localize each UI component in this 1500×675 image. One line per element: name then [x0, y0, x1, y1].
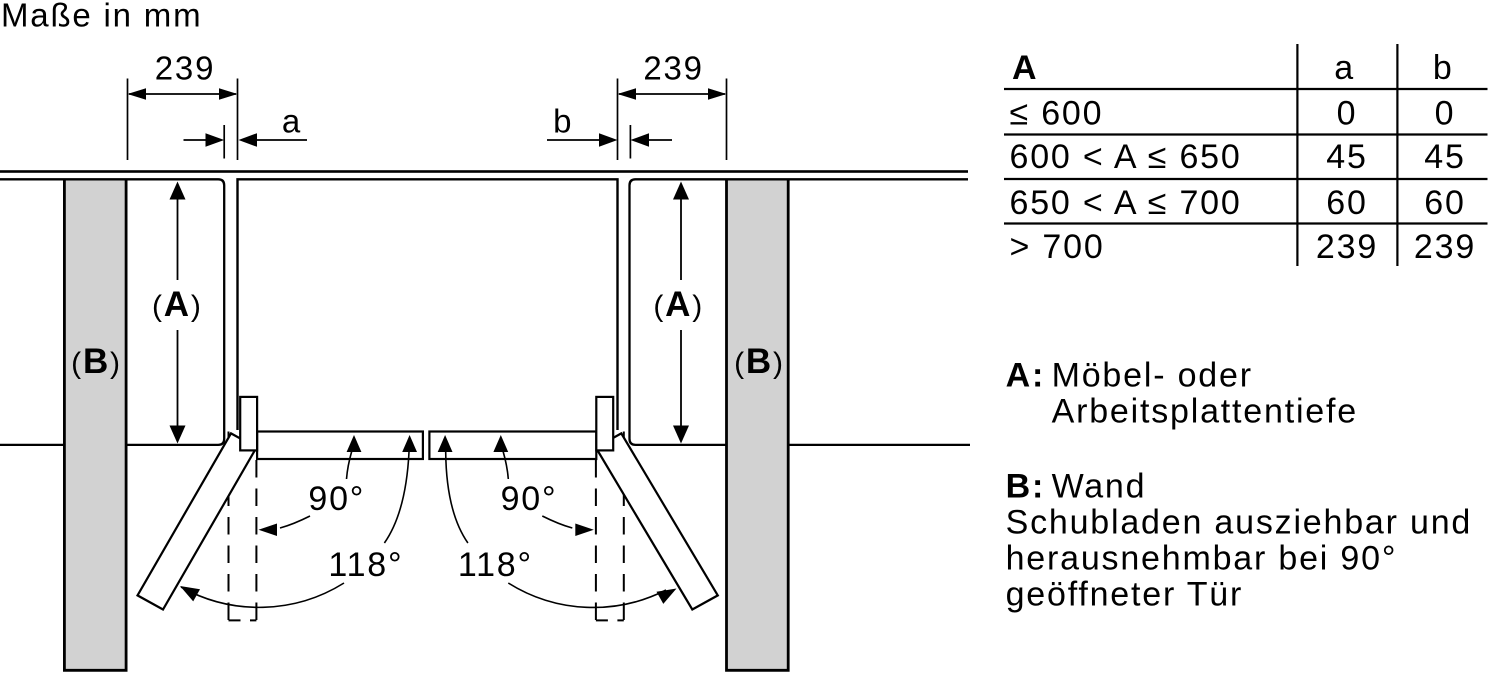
svg-text:geöffneter Tür: geöffneter Tür	[1006, 576, 1244, 614]
svg-text:600 < A ≤ 650: 600 < A ≤ 650	[1010, 138, 1242, 176]
svg-text:118°: 118°	[458, 546, 533, 584]
svg-text:> 700: > 700	[1010, 228, 1105, 266]
svg-text:650 < A ≤ 700: 650 < A ≤ 700	[1010, 184, 1242, 222]
svg-text:B:Wand: B:Wand	[1006, 468, 1147, 506]
svg-text:a: a	[282, 103, 302, 140]
svg-text:(B): (B)	[734, 342, 785, 381]
svg-text:Arbeitsplattentiefe: Arbeitsplattentiefe	[1052, 392, 1358, 430]
svg-text:118°: 118°	[328, 546, 403, 584]
svg-text:239: 239	[155, 50, 215, 87]
svg-text:45: 45	[1424, 138, 1465, 176]
svg-text:b: b	[553, 103, 573, 140]
svg-text:45: 45	[1326, 138, 1367, 176]
svg-text:(A): (A)	[152, 285, 203, 324]
svg-text:239: 239	[1316, 228, 1378, 266]
svg-text:b: b	[1433, 49, 1454, 87]
svg-text:90°: 90°	[501, 480, 558, 518]
svg-text:Schubladen ausziehbar und: Schubladen ausziehbar und	[1006, 504, 1473, 542]
svg-text:60: 60	[1326, 184, 1367, 222]
svg-text:A:Möbel- oder: A:Möbel- oder	[1006, 356, 1253, 394]
svg-text:(A): (A)	[653, 285, 704, 324]
svg-text:239: 239	[1414, 228, 1476, 266]
svg-text:0: 0	[1435, 95, 1456, 133]
svg-text:herausnehmbar bei 90°: herausnehmbar bei 90°	[1006, 540, 1398, 578]
svg-text:A: A	[1012, 49, 1038, 87]
svg-text:60: 60	[1424, 184, 1465, 222]
svg-text:0: 0	[1337, 95, 1358, 133]
svg-text:≤ 600: ≤ 600	[1010, 95, 1104, 133]
svg-text:239: 239	[643, 50, 703, 87]
svg-text:a: a	[1334, 49, 1355, 87]
svg-text:Maße in mm: Maße in mm	[1, 0, 202, 34]
svg-text:(B): (B)	[71, 342, 122, 381]
svg-text:90°: 90°	[308, 480, 365, 518]
